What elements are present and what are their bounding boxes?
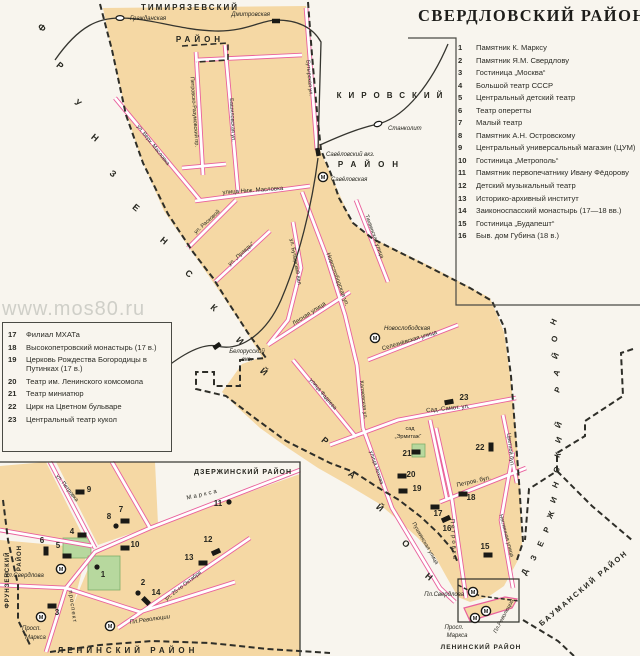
map-number: 12 — [204, 535, 213, 544]
legend-item-label: Малый театр — [476, 118, 638, 127]
map-label: Н — [423, 571, 434, 583]
metro-novoslobodskaya: М — [370, 333, 379, 342]
legend-item: 21Театр миниатюр — [8, 389, 167, 398]
map-label: З — [529, 554, 539, 562]
map-label: З — [108, 168, 119, 180]
legend-item: 17Филиал МХАТа — [8, 330, 167, 339]
map-number: 16 — [443, 524, 452, 533]
map-label: У — [73, 97, 84, 109]
legend-item-number: 15 — [458, 219, 471, 228]
page-title: СВЕРДЛОВСКИЙ РАЙОН — [418, 6, 640, 26]
legend-item-label: Памятник Я.М. Свердлову — [476, 56, 638, 65]
metro-label: Савёловская — [331, 177, 368, 183]
metro-icon: М — [473, 616, 478, 622]
map-number: 17 — [434, 509, 443, 518]
legend-item-label: Театр им. Ленинского комсомола — [26, 377, 167, 386]
map-number: 5 — [56, 541, 61, 550]
metro-icon: М — [59, 567, 64, 573]
legend-item-number: 10 — [458, 156, 471, 165]
legend-item-label: Центральный детский театр — [476, 93, 638, 102]
building-marker — [226, 499, 231, 504]
map-label: С — [183, 268, 195, 280]
metro-pl-sverdlova: М — [468, 587, 477, 596]
map-label: Ж — [545, 509, 557, 521]
legend-item: 2Памятник Я.М. Свердлову — [458, 56, 638, 65]
legend-item: 10Гостиница „Метрополь“ — [458, 156, 638, 165]
legend-item: 23Центральный театр кукол — [8, 415, 167, 424]
legend-item-label: Гостиница „Будапешт“ — [476, 219, 638, 228]
legend-item-label: Памятник К. Марксу — [476, 43, 638, 52]
metro-icon: М — [321, 175, 326, 181]
map-number: 8 — [107, 512, 112, 521]
map-number: 11 — [214, 499, 223, 508]
district-label-frunzensky-inset: ФРУНЗЕНСКИЙ — [3, 552, 11, 609]
legend-item-label: Памятник первопечатнику Ивану Фёдорову — [476, 168, 638, 177]
building-marker — [135, 590, 140, 595]
map-label: Пл.Свердлова — [424, 592, 464, 598]
legend-item-number: 7 — [458, 118, 471, 127]
metro-pl-revolyutsii-2: М — [470, 613, 479, 622]
map-label: Маркса — [25, 635, 47, 641]
metro-label: Новослободская — [384, 326, 431, 332]
legend-item-label: Гостиница „Москва“ — [476, 68, 638, 77]
legend-item-label: Церковь Рождества Богородицы в Путинках … — [26, 355, 167, 374]
legend-item: 15Гостиница „Будапешт“ — [458, 219, 638, 228]
legend-item-label: Филиал МХАТа — [26, 330, 167, 339]
legend-item-number: 5 — [458, 93, 471, 102]
building-marker — [78, 533, 87, 538]
building-marker — [113, 523, 118, 528]
metro-icon: М — [39, 615, 44, 621]
map-number: 3 — [55, 608, 60, 617]
map-label: И — [234, 335, 245, 347]
building-marker — [121, 519, 130, 524]
map-label: К — [209, 302, 220, 314]
legend-item-number: 8 — [458, 131, 471, 140]
legend-item: 11Памятник первопечатнику Ивану Фёдорову — [458, 168, 638, 177]
map-label: О — [400, 538, 412, 550]
building-marker — [398, 474, 407, 479]
map-label: вкз. — [242, 357, 252, 363]
legend-item-label: Центральный театр кукол — [26, 415, 167, 424]
legend-item-number: 20 — [8, 377, 21, 386]
legend-item-number: 18 — [8, 343, 21, 352]
map-label: Р — [542, 525, 553, 534]
metro-inset: М — [105, 621, 114, 630]
legend-item: 9Центральный универсальный магазин (ЦУМ) — [458, 143, 638, 152]
map-label: Е — [536, 539, 547, 548]
map-number: 13 — [185, 553, 194, 562]
map-number: 14 — [152, 588, 161, 597]
building-marker — [484, 553, 493, 558]
building-marker — [412, 450, 421, 455]
legend-item-label: Центральный универсальный магазин (ЦУМ) — [476, 143, 638, 152]
legend-item-label: Цирк на Цветном бульваре — [26, 402, 167, 411]
district-label-baumansky: БАУМАНСКИЙ РАЙОН — [537, 548, 630, 628]
legend-item-label: Историко-архивный институт — [476, 194, 638, 203]
legend-item: 16Быв. дом Губина (18 в.) — [458, 231, 638, 240]
metro-icon: М — [373, 336, 378, 342]
map-label: Н — [548, 317, 559, 326]
station-label: Белорусский — [229, 348, 265, 355]
building-marker — [489, 443, 494, 452]
map-label: Д — [519, 567, 530, 576]
station-label: Гражданская — [130, 16, 167, 22]
map-label: Р — [553, 385, 564, 394]
legend-left: 17Филиал МХАТа18Высокопетровский монасты… — [2, 322, 172, 452]
map-label: Н — [550, 480, 561, 489]
legend-item: 8Памятник А.Н. Островскому — [458, 131, 638, 140]
legend-item: 20Театр им. Ленинского комсомола — [8, 377, 167, 386]
legend-item-number: 17 — [8, 330, 21, 339]
map-number: 20 — [407, 470, 416, 479]
map-number: 7 — [119, 505, 124, 514]
map-label: сад — [405, 426, 415, 432]
district-label-leninsky: ЛЕНИНСКИЙ РАЙОН — [58, 646, 199, 655]
metro-savyolovskaya: М — [318, 172, 327, 181]
metro-pl-revolyutsii: М — [481, 606, 490, 615]
legend-item-label: Театр миниатюр — [26, 389, 167, 398]
legend-item: 1Памятник К. Марксу — [458, 43, 638, 52]
map-label: И — [548, 495, 559, 504]
legend-item-number: 21 — [8, 389, 21, 398]
legend-item-label: Гостиница „Метрополь“ — [476, 156, 638, 165]
map-number: 18 — [467, 493, 476, 502]
legend-item-number: 13 — [458, 194, 471, 203]
legend-item-label: Памятник А.Н. Островскому — [476, 131, 638, 140]
building-marker — [76, 490, 85, 495]
legend-item-label: Театр оперетты — [476, 106, 638, 115]
legend-item-number: 4 — [458, 81, 471, 90]
map-label: „Эрмитаж“ — [395, 434, 422, 440]
map-label: Просп. — [22, 626, 41, 632]
station-belorussky — [212, 342, 221, 350]
legend-item: 4Большой театр СССР — [458, 81, 638, 90]
legend-item-number: 19 — [8, 355, 21, 374]
map-label: Е — [130, 202, 141, 214]
station-label: Савёловский вкз. — [326, 151, 375, 158]
metro-icon: М — [471, 590, 476, 596]
legend-item-number: 6 — [458, 106, 471, 115]
legend-item-number: 3 — [458, 68, 471, 77]
metro-inset: М — [56, 564, 65, 573]
station-dmitrovskaya — [272, 19, 280, 24]
station-stankolit — [373, 120, 382, 127]
watermark: www.mos80.ru — [2, 298, 145, 321]
map-label: Пл.Свердлова — [4, 573, 44, 579]
legend-item-label: Заиконоспасский монастырь (17—18 вв.) — [476, 206, 638, 215]
legend-item-number: 23 — [8, 415, 21, 424]
map-number: 15 — [481, 542, 490, 551]
legend-item: 3Гостиница „Москва“ — [458, 68, 638, 77]
map-number: 10 — [131, 540, 140, 549]
map-label: И — [553, 435, 564, 444]
map-number: 4 — [70, 527, 75, 536]
inset-blocks — [0, 462, 300, 656]
district-label-kirovsky: КИРОВСКИЙ — [337, 91, 450, 100]
metro-icon: М — [108, 624, 113, 630]
legend-right: 1Памятник К. Марксу2Памятник Я.М. Свердл… — [458, 43, 638, 244]
legend-item: 18Высокопетровский монастырь (17 в.) — [8, 343, 167, 352]
district-label-timiryazevsky-raion: РАЙОН — [176, 35, 224, 44]
legend-item-number: 2 — [458, 56, 471, 65]
legend-item: 12Детский музыкальный театр — [458, 181, 638, 190]
map-label: Р — [54, 60, 65, 72]
map-number: 22 — [476, 443, 485, 452]
legend-item-number: 16 — [458, 231, 471, 240]
district-label-leninsky-small: ЛЕНИНСКИЙ РАЙОН — [441, 642, 522, 651]
legend-item-number: 14 — [458, 206, 471, 215]
map-label: РАЙОН — [15, 545, 23, 571]
legend-item-label: Большой театр СССР — [476, 81, 638, 90]
map-label: О — [549, 334, 560, 343]
map-page: ММММММММ ТИМИРЯЗЕВСКИЙРАЙОНКИРОВСКИЙРАЙО… — [0, 0, 640, 656]
district-label-dzerzhinsky-inset: ДЗЕРЖИНСКИЙ РАЙОН — [194, 467, 292, 476]
legend-item: 19Церковь Рождества Богородицы в Путинка… — [8, 355, 167, 374]
legend-item: 6Театр оперетты — [458, 106, 638, 115]
station-grazhdanskaya — [116, 16, 124, 21]
legend-item: 13Историко-архивный институт — [458, 194, 638, 203]
map-label: Ф — [36, 21, 49, 34]
map-number: 9 — [87, 485, 92, 494]
building-marker — [63, 554, 72, 559]
map-number: 19 — [413, 484, 422, 493]
map-number: 21 — [403, 449, 412, 458]
metro-inset: М — [36, 612, 45, 621]
legend-item-number: 1 — [458, 43, 471, 52]
station-label: Станколит — [388, 126, 422, 132]
station-label: Дмитровская — [230, 12, 270, 18]
map-label: А — [551, 368, 562, 377]
map-number: 23 — [460, 393, 469, 402]
map-label: Н — [89, 132, 100, 144]
map-label: Й — [553, 420, 564, 429]
map-number: 2 — [141, 578, 146, 587]
metro-icon: М — [484, 609, 489, 615]
building-marker — [94, 564, 99, 569]
map-label: Маркса — [447, 633, 469, 639]
district-label-timiryazevsky: ТИМИРЯЗЕВСКИЙ — [141, 3, 239, 12]
legend-item: 22Цирк на Цветном бульваре — [8, 402, 167, 411]
legend-item-label: Детский музыкальный театр — [476, 181, 638, 190]
legend-item-label: Быв. дом Губина (18 в.) — [476, 231, 638, 240]
legend-item-number: 11 — [458, 168, 471, 177]
map-label: Й — [550, 351, 561, 360]
legend-item-number: 9 — [458, 143, 471, 152]
legend-item: 14Заиконоспасский монастырь (17—18 вв.) — [458, 206, 638, 215]
map-label: Н — [158, 235, 169, 247]
map-label: Просп. — [445, 625, 464, 631]
building-marker — [44, 547, 49, 556]
building-marker — [199, 561, 208, 566]
legend-item-number: 12 — [458, 181, 471, 190]
legend-item: 5Центральный детский театр — [458, 93, 638, 102]
legend-item-label: Высокопетровский монастырь (17 в.) — [26, 343, 167, 352]
legend-item: 7Малый театр — [458, 118, 638, 127]
building-marker — [399, 489, 408, 494]
map-number: 6 — [40, 536, 45, 545]
map-number: 1 — [101, 570, 106, 579]
building-marker — [121, 546, 130, 551]
legend-item-number: 22 — [8, 402, 21, 411]
district-label-kirovsky-raion: РАЙОН — [338, 160, 406, 169]
